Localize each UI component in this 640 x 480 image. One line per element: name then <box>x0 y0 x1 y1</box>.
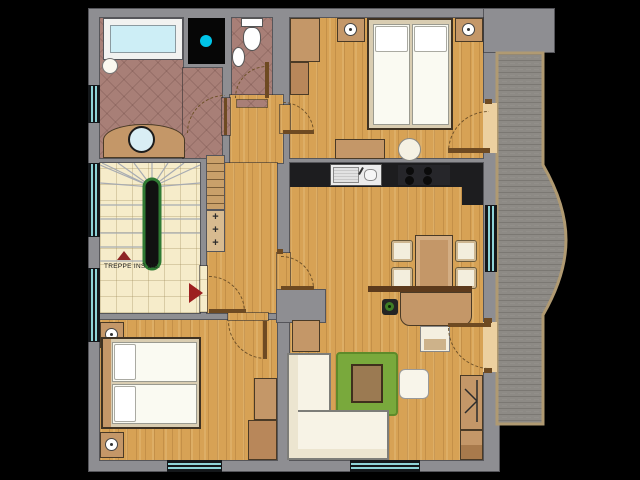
desk-chair <box>420 326 450 352</box>
wardrobe <box>290 18 320 62</box>
toilet <box>241 18 263 27</box>
floor-plan: TREPPE INS DG. + + + <box>0 0 640 480</box>
plus-mark: + <box>212 224 218 237</box>
wall <box>483 8 555 53</box>
wardrobe <box>290 62 309 95</box>
plus-mark: + <box>212 237 218 250</box>
door-opening <box>237 100 267 107</box>
dining-chair <box>391 240 413 262</box>
entry-arrow-icon <box>189 283 203 303</box>
staircase <box>100 163 200 313</box>
window <box>88 268 100 342</box>
balcony-deck <box>494 48 576 430</box>
desk <box>400 292 472 326</box>
double-bed <box>101 337 201 429</box>
shaft-vent-icon <box>200 35 212 47</box>
lamp-icon <box>105 438 118 451</box>
window <box>350 460 420 472</box>
stairs-up-icon <box>117 251 131 260</box>
stairs-note-label: TREPPE INS DG. <box>104 263 160 270</box>
round-stool <box>398 138 421 161</box>
lamp-icon <box>344 23 357 36</box>
kitchen-sink <box>330 164 382 186</box>
side-table <box>292 320 320 352</box>
window <box>88 85 100 123</box>
window <box>485 205 497 272</box>
kitchen-counter <box>290 163 483 187</box>
cabinet-arrow-icon <box>461 376 482 426</box>
double-bed <box>367 18 453 130</box>
kitchen-counter <box>462 163 483 205</box>
door-opening <box>228 313 268 320</box>
sofa <box>289 355 298 458</box>
window <box>167 460 222 472</box>
stair-railing <box>144 179 160 269</box>
door-leaf <box>448 323 491 327</box>
door-jamb <box>485 99 492 104</box>
wc-washbasin <box>232 47 245 67</box>
plant-icon <box>382 299 398 315</box>
ottoman <box>399 369 429 399</box>
toilet <box>243 27 261 51</box>
door-jamb <box>484 318 492 323</box>
cooktop <box>398 165 450 185</box>
dining-chair <box>455 240 477 262</box>
coffee-table <box>351 364 383 403</box>
washbasin <box>128 126 155 153</box>
tv-cabinet <box>460 430 483 460</box>
tv-cabinet <box>460 375 483 430</box>
door-jamb <box>277 249 283 254</box>
plus-mark: + <box>212 211 218 224</box>
bath-stool <box>102 58 118 74</box>
wardrobe <box>248 420 277 460</box>
wardrobe <box>254 378 277 420</box>
wall <box>277 290 325 322</box>
window <box>88 163 100 237</box>
bathtub <box>103 18 183 60</box>
sofa <box>289 449 387 458</box>
stair-flight <box>206 155 225 210</box>
lamp-icon <box>462 23 475 36</box>
stair-flight: + + + <box>206 210 225 252</box>
dresser <box>335 139 385 159</box>
